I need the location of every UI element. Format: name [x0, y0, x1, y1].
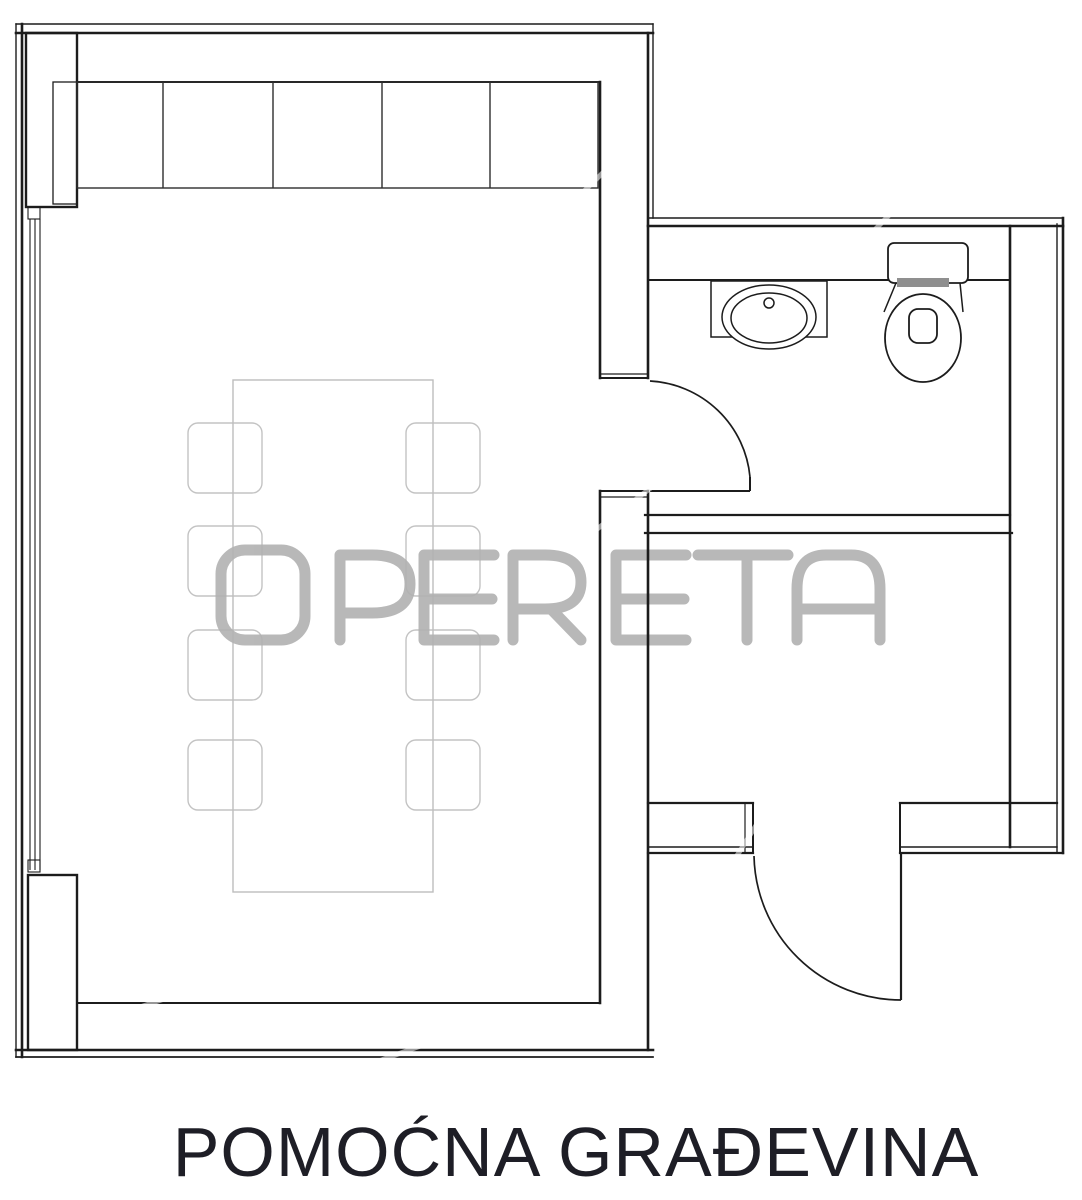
walls [16, 24, 1063, 1057]
closet [77, 82, 598, 188]
toilet [884, 243, 968, 382]
outer-wall-outline [16, 24, 1063, 1057]
caption: POMOĆNA GRAĐEVINA [35, 1112, 1082, 1192]
main-wall-lines [16, 24, 1063, 1057]
floorplan-drawing: OPERETA [0, 0, 1082, 1200]
inner-wall-edges [77, 82, 1010, 1003]
bathroom-door-leaf [650, 477, 750, 491]
watermark-text: OPERETA [221, 550, 880, 640]
chair [406, 423, 480, 493]
chair [406, 526, 480, 596]
window [28, 207, 40, 872]
faucet-icon [764, 298, 774, 308]
exterior-door-arc [754, 856, 901, 1000]
toilet-seat-hinge [897, 278, 949, 287]
bathroom-door [650, 381, 750, 491]
toilet-tank [888, 243, 968, 283]
chair [188, 423, 262, 493]
floorplan-page: OPERETA [0, 0, 1082, 1200]
wall-columns [26, 33, 77, 1050]
chair [406, 740, 480, 810]
doors [650, 381, 901, 1000]
toilet-drain [909, 309, 937, 343]
bathroom-door-arc [650, 381, 750, 477]
exterior-door [754, 853, 901, 1000]
chair [188, 740, 262, 810]
sink [711, 281, 827, 349]
